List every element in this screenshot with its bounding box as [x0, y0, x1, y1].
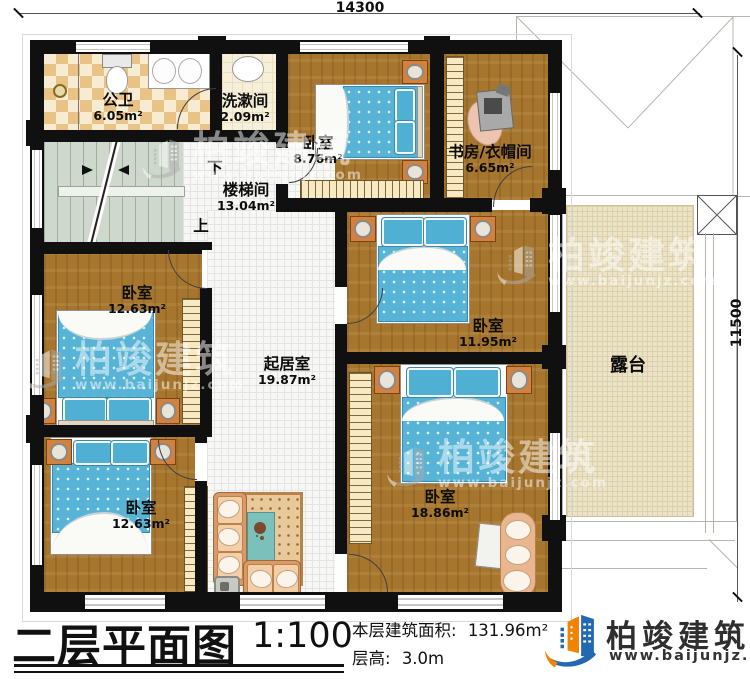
- room-label-bathroom: 公卫 6.05m²: [93, 92, 142, 123]
- window: [32, 150, 42, 228]
- monitor-icon: [484, 98, 502, 114]
- dimension-right-value: 11500: [729, 293, 745, 353]
- stair-direction-arrow: [118, 165, 129, 175]
- wardrobe: [300, 180, 424, 200]
- wall-segment: [347, 352, 548, 364]
- title-underline: [14, 664, 344, 667]
- room-label-study: 书房/衣帽间 6.65m²: [448, 144, 531, 175]
- roof-edge-line: [705, 233, 706, 533]
- pillow: [382, 218, 424, 246]
- window: [240, 595, 325, 609]
- washroom-sink-icon: [232, 56, 264, 82]
- room-name: 楼梯间: [217, 182, 275, 199]
- wall-segment: [430, 40, 444, 198]
- room-area: 11.95m²: [459, 335, 517, 349]
- room-name: 洗漱间: [220, 93, 269, 110]
- wall-pier: [198, 36, 226, 54]
- room-area: 13.04m²: [217, 199, 275, 213]
- room-label-washroom: 洗漱间 2.09m²: [220, 93, 269, 124]
- table-flowers-icon: [254, 522, 266, 534]
- floor-area-value: 131.96m²: [468, 621, 548, 640]
- floor-plan-page: 公卫 6.05m² 洗漱间 2.09m² 卧室 8.76m² 书房/衣帽间 6.…: [0, 0, 750, 679]
- nightstand: [470, 216, 496, 242]
- window: [32, 295, 42, 395]
- room-area: 8.76m²: [293, 152, 342, 166]
- wall-segment: [335, 324, 347, 554]
- pillow: [111, 441, 149, 465]
- chair-cushion: [505, 545, 531, 565]
- stair-direction: 下: [207, 160, 223, 177]
- room-label-stairwell: 楼梯间 13.04m²: [217, 182, 275, 213]
- room-label-terrace: 露台: [610, 356, 646, 376]
- floor-height-label: 层高:: [352, 649, 391, 668]
- floor-area-line: 本层建筑面积: 131.96m²: [352, 617, 548, 641]
- wall-segment: [195, 481, 207, 592]
- roof-edge-line: [713, 233, 714, 533]
- window: [32, 465, 42, 565]
- wall-segment: [200, 288, 212, 437]
- window: [550, 215, 560, 312]
- window: [300, 42, 408, 52]
- wardrobe: [446, 56, 464, 200]
- room-label-living: 起居室 19.87m²: [258, 356, 316, 387]
- room-name: 起居室: [258, 356, 316, 373]
- wall-segment: [276, 184, 288, 212]
- nightstand: [46, 439, 72, 465]
- headboard: [417, 86, 423, 158]
- title-underline: [14, 671, 344, 673]
- room-name: 卧室: [459, 318, 517, 335]
- wall-pier: [542, 345, 566, 369]
- nightstand: [506, 366, 532, 394]
- wardrobe: [349, 372, 372, 544]
- wall-segment: [276, 40, 288, 148]
- wall-segment: [30, 130, 288, 142]
- room-label-bedroom-876: 卧室 8.76m²: [293, 135, 342, 166]
- pillow: [424, 218, 466, 246]
- window: [550, 433, 560, 520]
- floor-height-value: 3.0m: [402, 649, 444, 668]
- brand-logo-icon: [542, 608, 606, 670]
- room-label-bedroom-1195: 卧室 11.95m²: [459, 318, 517, 349]
- wall-segment: [200, 242, 212, 250]
- plan-scale: 1:100: [252, 616, 353, 656]
- chair-cushion: [505, 520, 531, 540]
- window: [85, 595, 165, 609]
- room-area: 19.87m²: [258, 373, 316, 387]
- room-label-bedroom-1263b: 卧室 12.63m²: [112, 500, 170, 531]
- sink-basin-icon: [178, 58, 202, 84]
- room-area: 12.63m²: [112, 517, 170, 531]
- stair-up-label: 上: [193, 218, 209, 235]
- window: [550, 93, 560, 170]
- floor-drain-icon: [53, 84, 67, 98]
- room-area: 18.86m²: [411, 506, 469, 520]
- stair-down-label: 下: [207, 160, 223, 177]
- room-name: 卧室: [411, 489, 469, 506]
- room-area: 2.09m²: [220, 110, 269, 124]
- wall-pier: [26, 120, 44, 146]
- stair-direction: 上: [193, 218, 209, 235]
- floor-height-line: 层高: 3.0m: [352, 645, 444, 669]
- nightstand: [402, 60, 428, 84]
- nightstand: [156, 398, 180, 424]
- room-area: 6.65m²: [448, 161, 531, 175]
- pillow: [395, 121, 415, 154]
- pillow: [63, 398, 107, 422]
- shower-partition: [78, 52, 79, 130]
- side-table-item: [220, 582, 229, 591]
- wall-pier: [424, 36, 450, 54]
- room-area: 12.63m²: [108, 302, 166, 316]
- nightstand: [350, 216, 376, 242]
- coffee-table-icon: [247, 512, 275, 564]
- nightstand: [374, 366, 400, 394]
- sink-basin-icon: [152, 58, 176, 84]
- room-name: 露台: [610, 356, 646, 376]
- stair-landing-rail: [58, 186, 185, 197]
- window: [76, 42, 150, 52]
- window: [398, 595, 503, 609]
- column-x-mark: [698, 196, 736, 234]
- room-name: 卧室: [108, 285, 166, 302]
- terrace-column: [697, 195, 737, 235]
- roof-eave-line: [562, 568, 707, 569]
- stair-direction-arrow: [82, 165, 93, 175]
- room-area: 6.05m²: [93, 109, 142, 123]
- brand-url: www.baijunjz.com: [609, 648, 750, 664]
- wall-pier: [542, 188, 566, 214]
- pillow: [407, 368, 453, 397]
- chair-cushion: [503, 570, 531, 592]
- dimension-top-value: 14300: [330, 0, 390, 16]
- wall-segment: [288, 198, 492, 212]
- wall-pier: [26, 415, 44, 443]
- room-label-bedroom-1886: 卧室 18.86m²: [411, 489, 469, 520]
- pillow: [454, 368, 500, 397]
- wall-segment: [335, 210, 347, 287]
- pillow: [74, 441, 112, 465]
- room-name: 书房/衣帽间: [448, 144, 531, 161]
- roof-eave-miter: [709, 539, 738, 568]
- room-name: 卧室: [293, 135, 342, 152]
- wall-segment: [30, 425, 212, 437]
- room-name: 卧室: [112, 500, 170, 517]
- pillow: [395, 89, 415, 122]
- toilet-bowl-icon: [106, 66, 128, 94]
- room-label-bedroom-1263a: 卧室 12.63m²: [108, 285, 166, 316]
- floor-area-label: 本层建筑面积:: [352, 621, 457, 640]
- room-name: 公卫: [93, 92, 142, 109]
- pillow: [107, 398, 151, 422]
